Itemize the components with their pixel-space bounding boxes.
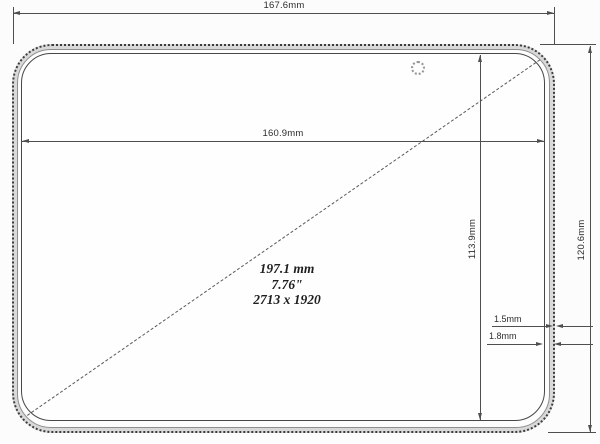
arrowhead-left bbox=[556, 324, 563, 328]
display-resolution: 2713 x 1920 bbox=[253, 292, 321, 308]
extension-line bbox=[554, 7, 555, 44]
camera-icon bbox=[411, 61, 425, 75]
display-diagonal-inch: 7.76" bbox=[253, 277, 321, 293]
extension-line bbox=[548, 432, 596, 433]
dim-display-width-label: 160.9mm bbox=[262, 129, 303, 139]
technical-drawing: 167.6mm 160.9mm 113.9mm 120.6mm 1.5mm 1.… bbox=[0, 0, 600, 444]
bezel-total-label: 1.8mm bbox=[489, 331, 517, 341]
dim-outer-height-label: 120.6mm bbox=[577, 219, 587, 260]
display-spec-text: 197.1 mm 7.76" 2713 x 1920 bbox=[253, 261, 321, 308]
arrowhead-right bbox=[547, 11, 554, 15]
arrowhead-down bbox=[588, 425, 592, 432]
arrowhead-down bbox=[478, 413, 482, 420]
arrowhead-up bbox=[478, 55, 482, 62]
leader-line bbox=[561, 344, 593, 345]
bezel-rim-label: 1.5mm bbox=[494, 314, 522, 324]
display-diagonal-mm: 197.1 mm bbox=[253, 261, 321, 277]
extension-line bbox=[540, 44, 596, 45]
leader-line bbox=[563, 326, 593, 327]
dim-display-height-label: 113.9mm bbox=[468, 219, 478, 259]
dim-display-height-line bbox=[480, 55, 481, 420]
dim-outer-width-label: 167.6mm bbox=[263, 1, 304, 11]
arrowhead-right bbox=[546, 324, 553, 328]
leader-line bbox=[487, 344, 536, 345]
dim-outer-width-line bbox=[13, 13, 554, 14]
dim-display-width-line bbox=[22, 141, 544, 142]
dim-outer-height-line bbox=[590, 46, 591, 432]
leader-line bbox=[492, 326, 546, 327]
arrowhead-right bbox=[536, 342, 543, 346]
arrowhead-left bbox=[22, 139, 29, 143]
arrowhead-left bbox=[554, 342, 561, 346]
arrowhead-left bbox=[13, 11, 20, 15]
arrowhead-up bbox=[588, 46, 592, 53]
arrowhead-right bbox=[537, 139, 544, 143]
